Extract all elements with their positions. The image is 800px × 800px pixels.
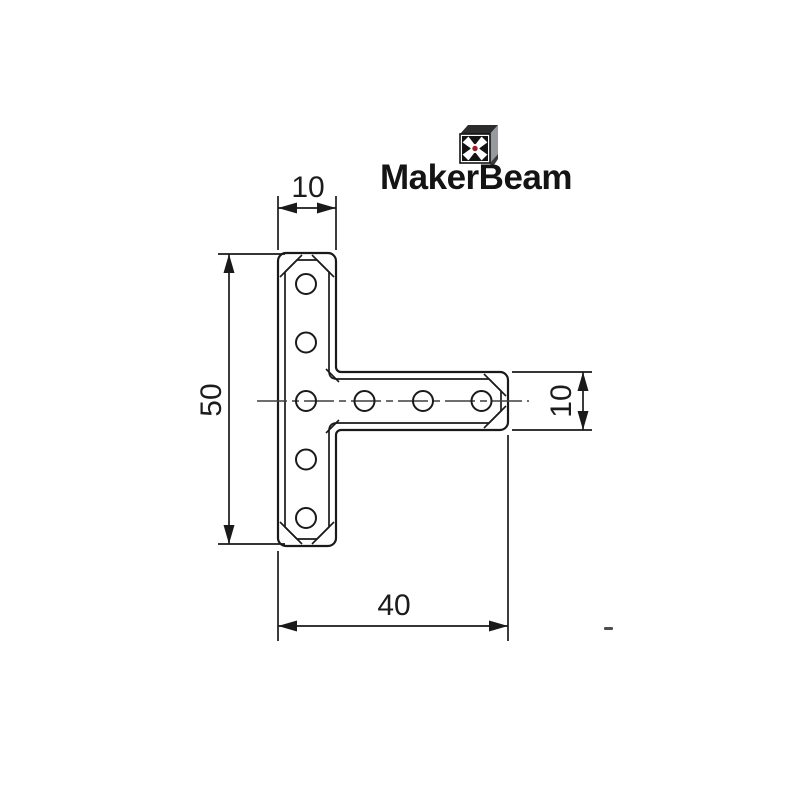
center-dot	[472, 146, 477, 151]
t-bracket-drawing: 10 50 10 40	[0, 0, 800, 800]
bracket-outer-outline	[278, 253, 508, 546]
arrowhead	[489, 621, 508, 632]
bolt-hole	[296, 450, 316, 470]
arrowhead	[224, 525, 235, 544]
bolt-hole	[296, 508, 316, 528]
dimension-label-right-thickness: 10	[545, 384, 578, 417]
logo-text: MakerBeam	[376, 160, 576, 195]
arrowhead	[578, 411, 589, 430]
bolt-hole	[296, 274, 316, 294]
dimension-top-width: 10	[278, 171, 336, 250]
artifact-dash	[604, 627, 613, 630]
drawing-canvas: 10 50 10 40	[0, 0, 800, 800]
arrowhead	[317, 203, 336, 214]
t-bracket	[257, 253, 529, 546]
arrowhead	[578, 372, 589, 391]
dimension-left-height: 50	[195, 254, 285, 544]
arrowhead	[278, 203, 297, 214]
dimension-label-bottom-length: 40	[377, 589, 410, 622]
arrowhead	[224, 254, 235, 273]
dimension-label-left-height: 50	[195, 383, 228, 416]
dimension-right-thickness: 10	[512, 372, 592, 430]
bolt-hole	[296, 333, 316, 353]
bracket-inner-outline	[285, 260, 501, 539]
dimension-label-top-width: 10	[291, 171, 324, 204]
arrowhead	[278, 621, 297, 632]
